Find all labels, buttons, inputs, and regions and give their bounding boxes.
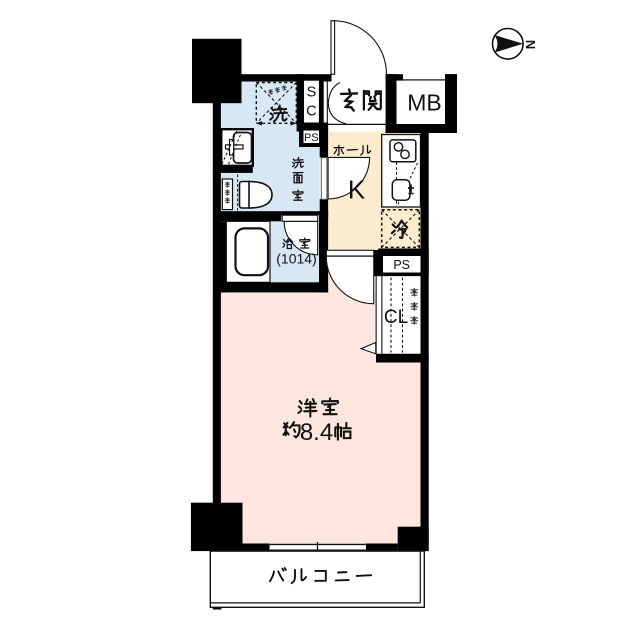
- svg-text:PS: PS: [304, 132, 319, 144]
- svg-text:K: K: [348, 175, 366, 205]
- svg-text:PS: PS: [393, 258, 410, 272]
- svg-text:MB: MB: [407, 90, 442, 116]
- svg-text:N: N: [523, 40, 538, 49]
- svg-text:C: C: [306, 104, 316, 120]
- svg-text:CL: CL: [384, 307, 408, 328]
- svg-text:(1014): (1014): [276, 251, 316, 267]
- svg-text:S: S: [307, 85, 317, 101]
- svg-text:8.4: 8.4: [300, 419, 333, 446]
